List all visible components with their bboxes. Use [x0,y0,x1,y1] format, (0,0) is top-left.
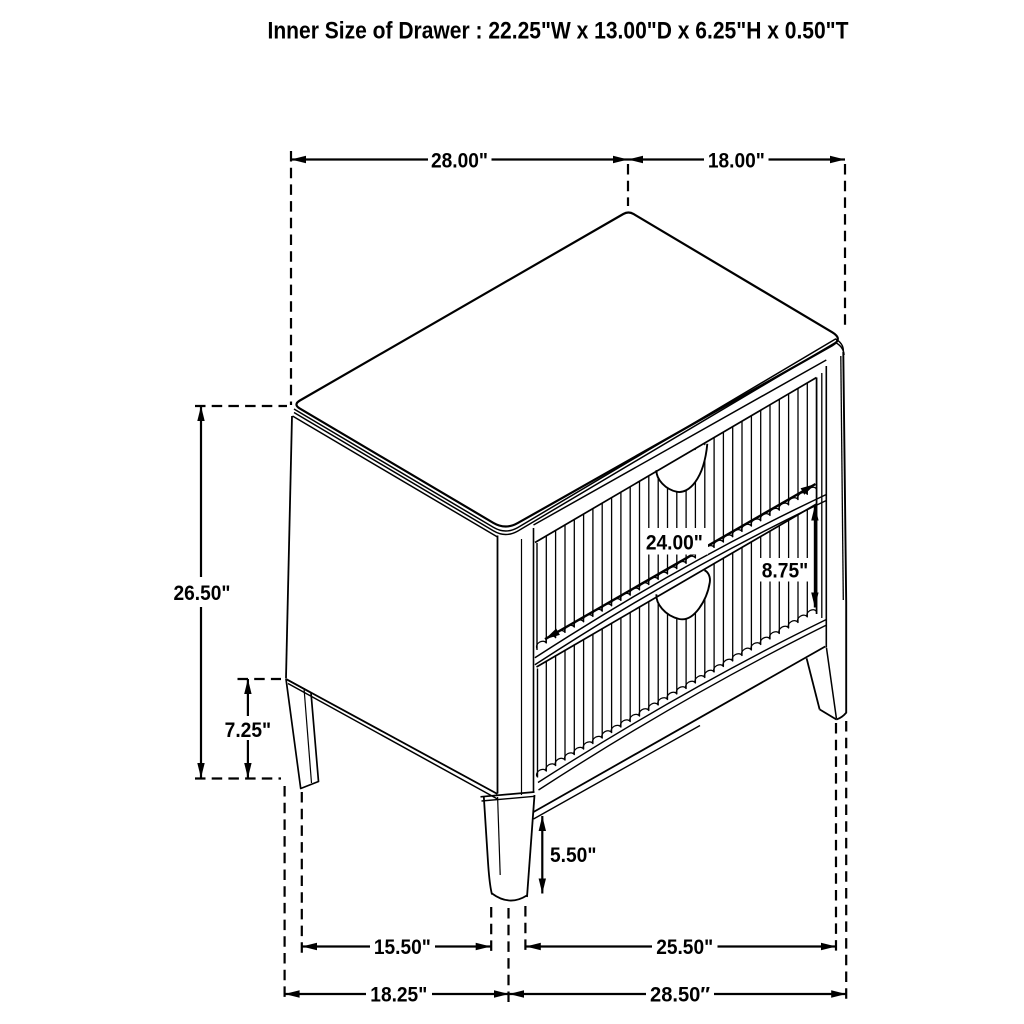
svg-text:24.00": 24.00" [646,531,703,555]
svg-text:26.50": 26.50" [174,581,231,605]
svg-text:8.75": 8.75" [762,559,809,583]
svg-text:25.50": 25.50" [656,935,713,959]
svg-text:7.25": 7.25" [225,718,272,742]
svg-text:5.50": 5.50" [550,843,597,867]
svg-text:18.25": 18.25" [370,983,427,1007]
svg-text:Inner Size of Drawer : 22.25"W: Inner Size of Drawer : 22.25"W x 13.00"D… [268,18,849,45]
svg-text:28.50″: 28.50″ [650,983,710,1007]
svg-text:15.50": 15.50" [374,935,431,959]
svg-text:18.00": 18.00" [708,149,765,173]
svg-text:28.00": 28.00" [431,149,488,173]
